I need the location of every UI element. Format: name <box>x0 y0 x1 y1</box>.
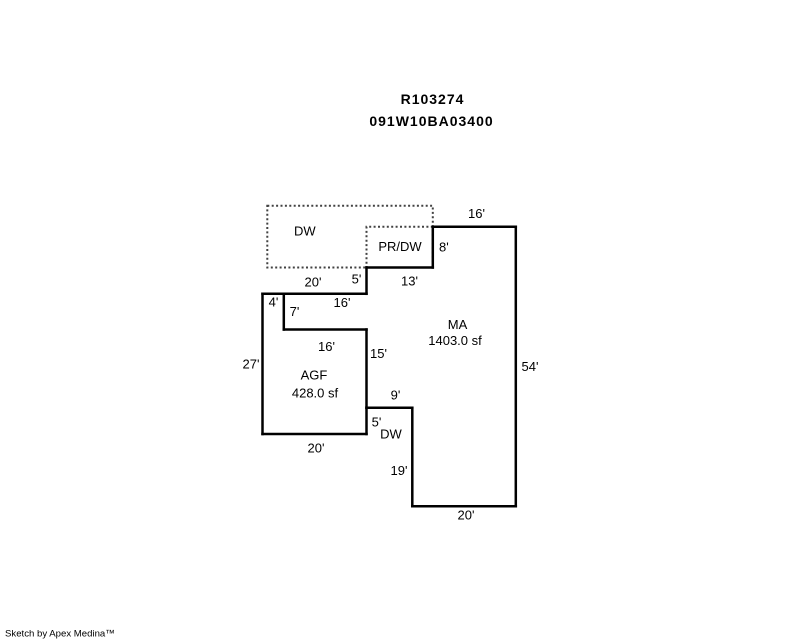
svg-text:7': 7' <box>290 304 300 319</box>
svg-text:19': 19' <box>391 463 408 478</box>
svg-text:20': 20' <box>305 275 322 290</box>
svg-text:AGF: AGF <box>301 368 328 383</box>
svg-text:5': 5' <box>352 272 362 287</box>
svg-text:15': 15' <box>370 346 387 361</box>
svg-text:DW: DW <box>380 427 402 442</box>
svg-text:20': 20' <box>458 508 475 523</box>
svg-text:091W10BA03400: 091W10BA03400 <box>369 113 493 129</box>
svg-text:4': 4' <box>269 295 279 310</box>
svg-text:13': 13' <box>401 274 418 289</box>
svg-text:PR/DW: PR/DW <box>378 239 422 254</box>
svg-text:1403.0 sf: 1403.0 sf <box>428 333 482 348</box>
svg-text:R103274: R103274 <box>401 91 465 107</box>
svg-text:428.0 sf: 428.0 sf <box>292 386 339 401</box>
svg-text:27': 27' <box>243 357 260 372</box>
svg-text:9': 9' <box>391 388 401 403</box>
svg-text:8': 8' <box>439 240 449 255</box>
svg-text:DW: DW <box>294 224 316 239</box>
svg-text:54': 54' <box>522 359 539 374</box>
svg-text:16': 16' <box>318 339 335 354</box>
svg-text:16': 16' <box>334 295 351 310</box>
svg-text:MA: MA <box>448 317 468 332</box>
svg-text:20': 20' <box>308 441 325 456</box>
svg-text:16': 16' <box>468 206 485 221</box>
svg-text:Sketch by Apex Medina™: Sketch by Apex Medina™ <box>5 629 115 640</box>
